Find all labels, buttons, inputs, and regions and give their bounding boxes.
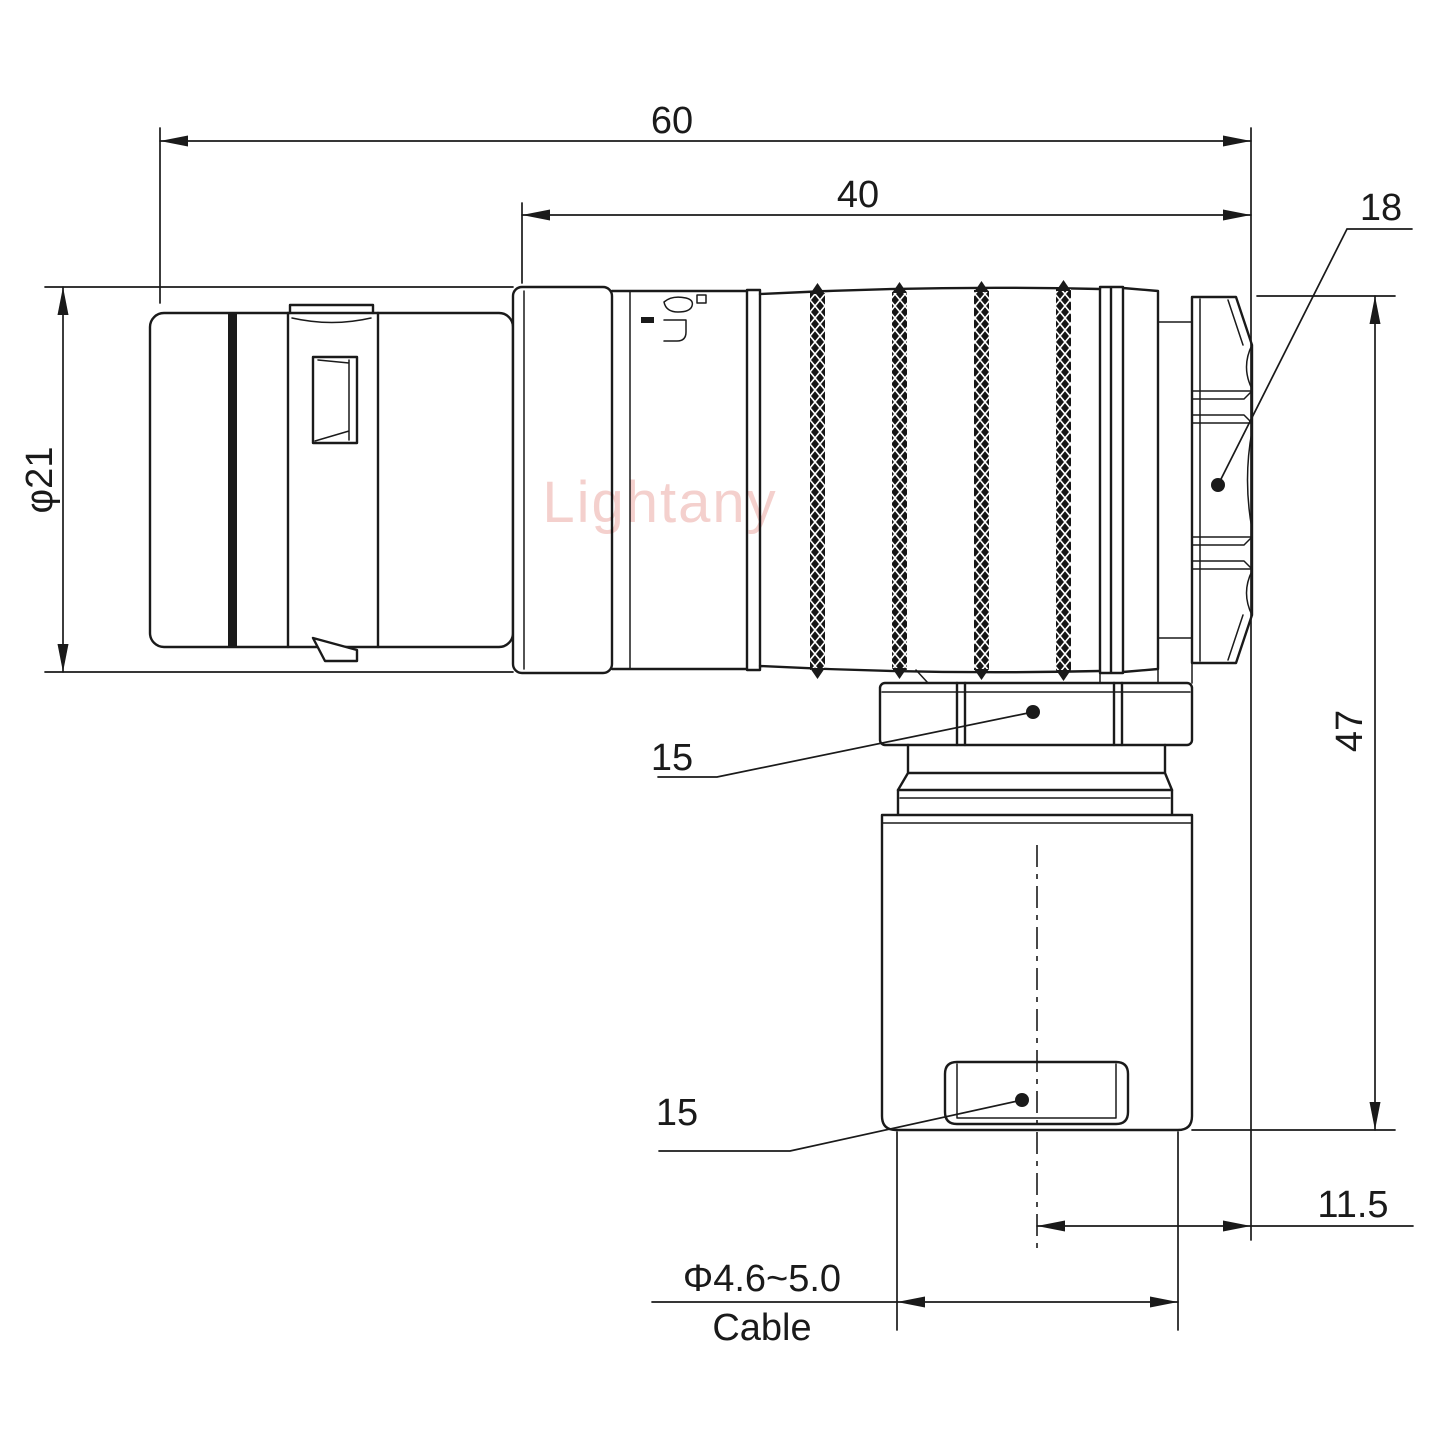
dim-label-18: 18 [1360,187,1402,229]
dimension-rear-body-length: 40 [522,174,1251,283]
dim-label-dia21: φ21 [19,447,61,514]
front-shell [150,305,513,661]
dim-label-15-lower: 15 [656,1092,698,1134]
knurl-strip [1056,280,1071,681]
brand-mark [641,295,706,341]
rear-collar [1100,287,1192,673]
dim-label-cable-range: Φ4.6~5.0 [683,1258,841,1300]
dimension-cable: Φ4.6~5.0 Cable [652,1132,1178,1349]
dimension-overall-length: 60 [160,100,1251,303]
knurl-strip [810,283,825,679]
knurl-strip [974,281,989,680]
technical-drawing-sheet: 60 40 18 φ21 47 15 15 [0,0,1440,1440]
dim-label-cable-word: Cable [712,1307,811,1349]
dim-label-60: 60 [651,100,693,142]
dim-label-40: 40 [837,174,879,216]
dim-label-47: 47 [1329,710,1371,752]
dimension-outlet-offset: 11.5 [1037,1184,1413,1232]
connector-body [150,280,1252,1250]
dim-label-11-5: 11.5 [1317,1184,1388,1226]
dim-label-15-upper: 15 [651,737,693,779]
watermark: Lightany [542,470,777,535]
connector-drawing: 60 40 18 φ21 47 15 15 [0,0,1440,1440]
stepped-neck [898,745,1172,815]
shell-ring-band [228,313,237,647]
knurled-barrel [760,280,1100,681]
knurl-strip [892,282,907,679]
